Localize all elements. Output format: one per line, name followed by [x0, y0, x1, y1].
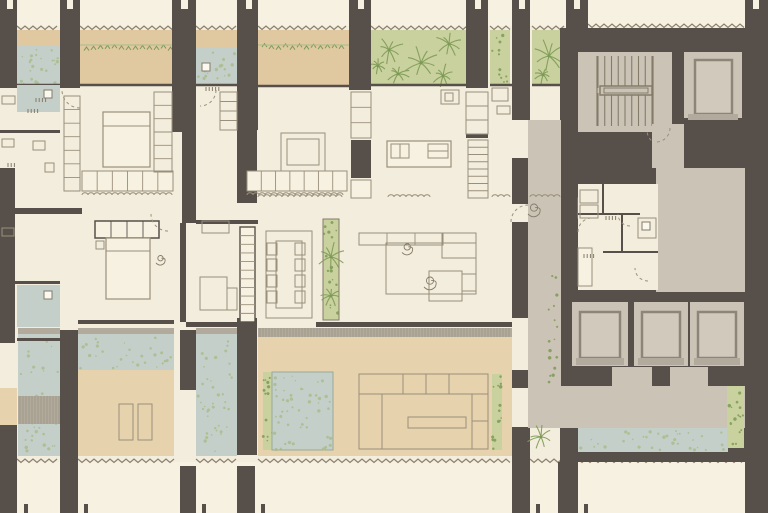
lift-door-stub — [612, 367, 652, 388]
core-planter — [727, 386, 744, 448]
pier — [466, 0, 488, 88]
floor-plan-svg — [0, 0, 768, 513]
exterior-walk-top — [0, 0, 768, 26]
palm-plant-center — [377, 65, 380, 68]
joint-tick — [584, 504, 588, 513]
lift-door-stub — [670, 367, 708, 388]
pier — [237, 0, 258, 130]
pier — [512, 0, 530, 120]
palm-plant-center — [388, 49, 391, 52]
terrace-strip — [17, 30, 60, 46]
palm-plant-center — [420, 62, 423, 65]
deck-sill — [18, 328, 60, 334]
plunge-pool — [272, 372, 333, 450]
lounge-terrace — [78, 370, 174, 456]
wall — [351, 140, 371, 178]
pier — [180, 466, 196, 513]
wall — [0, 208, 82, 214]
terrace-court — [258, 30, 349, 85]
suite-bench — [578, 248, 592, 286]
elevator-car — [642, 312, 680, 358]
joint-notch — [753, 0, 759, 9]
glass-wall — [316, 322, 512, 327]
side-walkway — [0, 388, 17, 426]
closet-row — [247, 171, 347, 191]
elevator-car — [695, 60, 732, 114]
palm-plant-center — [542, 74, 545, 77]
joint-tick — [24, 504, 28, 513]
water-strip — [78, 334, 174, 370]
elevator-sill — [694, 358, 740, 365]
joint-notch — [574, 0, 580, 9]
pier — [558, 462, 578, 513]
pier — [237, 466, 255, 513]
deck-sill — [196, 328, 237, 334]
terrace-strip — [196, 30, 237, 48]
wall — [17, 338, 60, 341]
palm-plant-center — [448, 43, 451, 46]
joint-tick — [84, 504, 88, 513]
pier — [0, 168, 15, 343]
pier — [60, 330, 78, 513]
joint-notch — [67, 0, 73, 9]
shelf-partition — [240, 227, 255, 322]
elevator-sill — [576, 358, 624, 365]
east-hall — [656, 168, 745, 292]
joint-notch — [519, 0, 525, 9]
elevator-car — [698, 312, 736, 358]
wet-room-floor — [17, 285, 60, 327]
pier — [0, 425, 17, 513]
joint-notch — [246, 0, 252, 9]
joint-notch — [475, 0, 481, 9]
bath-floor — [17, 85, 60, 112]
pier — [512, 427, 530, 513]
pier — [512, 370, 530, 388]
floor-plan — [0, 0, 768, 513]
bed — [106, 238, 150, 299]
wall — [512, 158, 528, 204]
joint-tick — [202, 504, 206, 513]
basin — [642, 222, 650, 230]
entry-corridor — [528, 120, 561, 388]
kitchen-island — [387, 141, 451, 167]
pier — [0, 0, 17, 88]
pier — [745, 0, 768, 513]
elevator-sill — [638, 358, 684, 365]
pier — [180, 330, 196, 390]
bed — [103, 112, 150, 167]
kitchen-cabinet — [351, 180, 371, 198]
joint-tick — [261, 504, 265, 513]
palm-plant-center — [540, 436, 543, 439]
palm-plant-center — [548, 55, 551, 58]
wall — [466, 134, 488, 138]
pier — [172, 0, 196, 132]
joint-notch — [181, 0, 188, 9]
joint-notch — [358, 0, 364, 9]
bottom-hall — [528, 386, 745, 428]
palm-plant-center — [330, 295, 333, 298]
wall — [512, 222, 528, 318]
bath-fixture — [44, 90, 52, 98]
palm-plant-center — [330, 256, 333, 259]
glass-wall — [78, 320, 174, 324]
terrace-court — [80, 30, 174, 85]
exterior-walk-bottom — [0, 462, 768, 513]
pier — [237, 318, 257, 455]
glass-wall — [186, 322, 237, 327]
wall — [180, 223, 186, 322]
wall — [0, 281, 60, 284]
wall — [182, 132, 196, 223]
water-channel — [18, 334, 60, 456]
water-court — [17, 46, 60, 85]
joint-notch — [7, 0, 13, 9]
elevator-sill — [688, 114, 738, 120]
bath-fixture — [202, 63, 210, 71]
deck-sill — [78, 328, 174, 334]
elevator-car — [580, 312, 620, 358]
bath-fixture — [44, 291, 52, 299]
pier — [349, 0, 371, 90]
palm-plant-center — [442, 75, 445, 78]
joint-tick — [536, 504, 540, 513]
lift-vestibule — [652, 124, 684, 168]
pier — [60, 0, 80, 88]
stair-landing — [600, 86, 652, 95]
wall — [0, 130, 60, 133]
palm-plant-center — [397, 73, 400, 76]
deck-bridge — [18, 396, 60, 424]
wall — [237, 130, 257, 203]
